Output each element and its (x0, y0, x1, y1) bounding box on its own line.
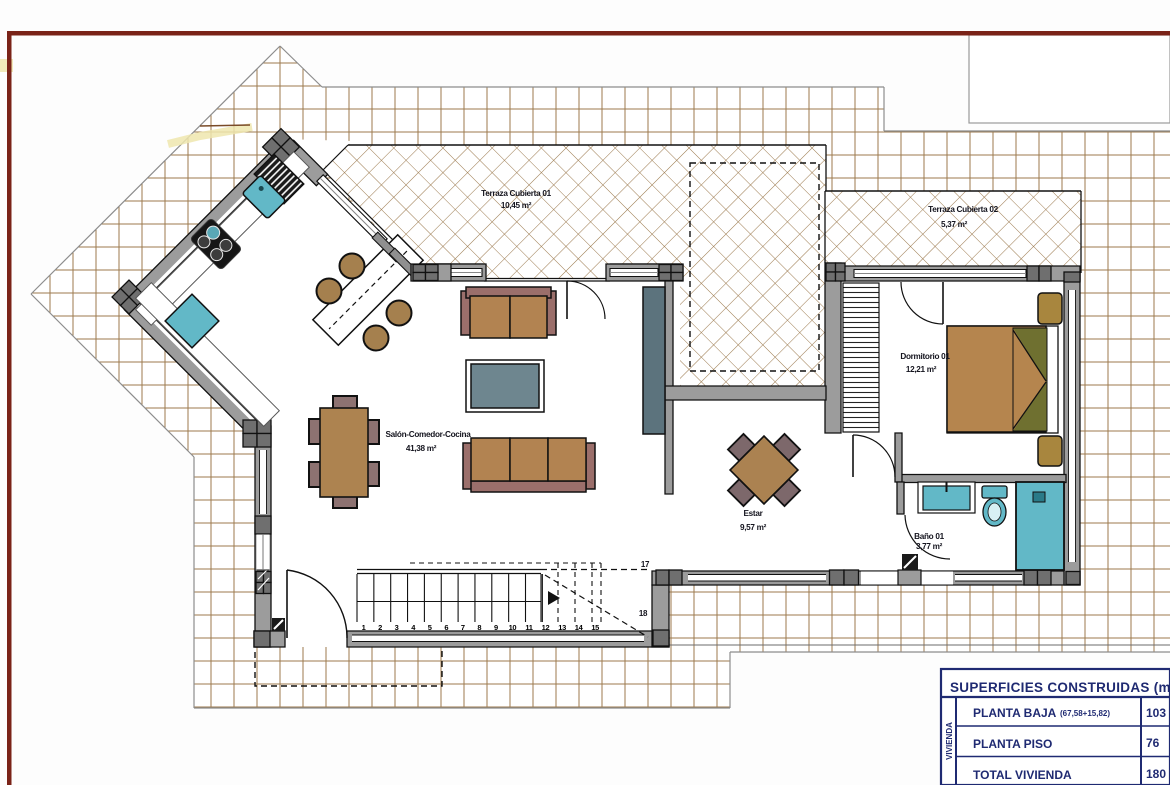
svg-text:Dormitorio 01: Dormitorio 01 (900, 352, 950, 361)
svg-text:Estar: Estar (744, 509, 764, 518)
svg-text:14: 14 (575, 623, 584, 632)
svg-text:VIVIENDA: VIVIENDA (945, 722, 954, 760)
svg-text:TOTAL VIVIENDA: TOTAL VIVIENDA (973, 768, 1072, 782)
svg-text:PLANTA PISO: PLANTA PISO (973, 737, 1052, 751)
svg-text:Baño 01: Baño 01 (914, 532, 944, 541)
svg-text:7: 7 (461, 623, 465, 632)
svg-text:SUPERFICIES CONSTRUIDAS (m: SUPERFICIES CONSTRUIDAS (m (950, 680, 1170, 695)
svg-text:41,38 m²: 41,38 m² (406, 444, 437, 453)
svg-text:5: 5 (428, 623, 432, 632)
svg-text:3,77 m²: 3,77 m² (916, 542, 943, 551)
svg-text:6: 6 (444, 623, 448, 632)
svg-text:9,57 m²: 9,57 m² (740, 523, 767, 532)
svg-text:103: 103 (1146, 706, 1166, 720)
svg-text:Salón-Comedor-Cocina: Salón-Comedor-Cocina (386, 430, 472, 439)
svg-text:8: 8 (477, 623, 481, 632)
svg-text:13: 13 (558, 623, 566, 632)
svg-text:2: 2 (378, 623, 382, 632)
svg-text:9: 9 (494, 623, 498, 632)
svg-text:180: 180 (1146, 767, 1166, 781)
svg-text:3: 3 (395, 623, 399, 632)
svg-text:10: 10 (509, 623, 517, 632)
svg-text:76: 76 (1146, 736, 1160, 750)
svg-text:10,45 m²: 10,45 m² (501, 201, 532, 210)
svg-text:Terraza Cubierta 02: Terraza Cubierta 02 (928, 205, 998, 214)
svg-text:12,21 m²: 12,21 m² (906, 365, 937, 374)
svg-text:1: 1 (362, 623, 366, 632)
svg-text:Terraza Cubierta 01: Terraza Cubierta 01 (481, 189, 551, 198)
svg-text:PLANTA BAJA: PLANTA BAJA (973, 706, 1057, 720)
svg-text:15: 15 (591, 623, 599, 632)
svg-text:5,37 m²: 5,37 m² (941, 220, 968, 229)
svg-text:17: 17 (641, 560, 650, 569)
svg-text:(67,58+15,82): (67,58+15,82) (1060, 709, 1110, 718)
svg-text:18: 18 (639, 609, 648, 618)
svg-text:11: 11 (525, 623, 532, 632)
svg-text:12: 12 (542, 623, 550, 632)
